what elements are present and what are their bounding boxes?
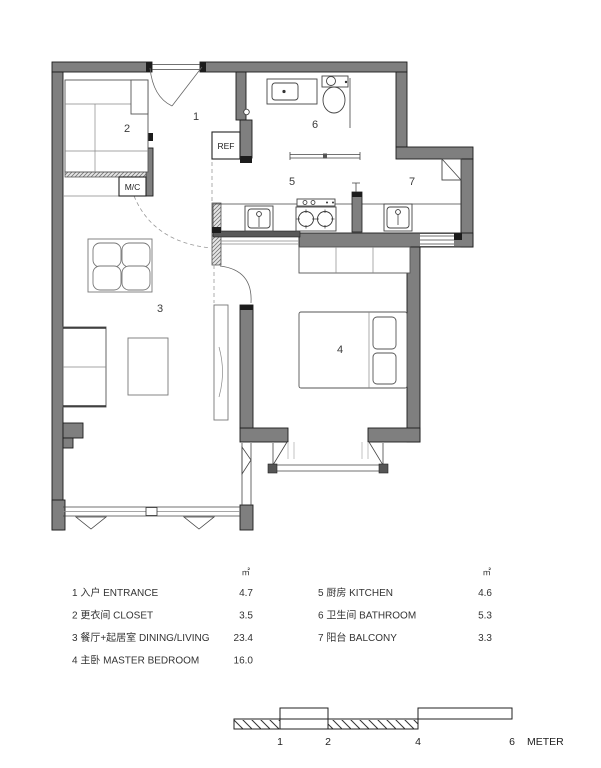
legend-row-area: 16.0 <box>234 656 254 667</box>
door-stop <box>244 109 250 115</box>
room-label-balcony: 7 <box>409 176 415 188</box>
balcony-corner-shelf <box>442 159 461 180</box>
refrigerator-label: REF <box>218 141 235 151</box>
room-label-living: 3 <box>157 303 163 315</box>
washing-machine: M/C <box>119 177 146 196</box>
floor-plan-svg: M/C REF <box>0 0 601 768</box>
chair <box>122 243 150 267</box>
toilet <box>322 76 348 113</box>
room-label-bathroom: 6 <box>312 119 318 131</box>
legend-row-area: 23.4 <box>234 633 254 644</box>
chair <box>93 243 121 267</box>
room-label-bedroom: 4 <box>337 344 343 356</box>
pillow <box>373 353 396 384</box>
counter-half-wall <box>213 231 300 237</box>
legend-row-area: 4.6 <box>478 588 492 599</box>
washbasin <box>267 79 317 104</box>
room-label-closet: 2 <box>124 123 130 135</box>
refrigerator: REF <box>212 132 240 159</box>
scale-tick-4: 4 <box>415 736 421 748</box>
bed <box>299 312 407 388</box>
bedroom-door <box>214 265 251 303</box>
scale-tick-1: 1 <box>277 736 283 748</box>
towel-rail <box>290 152 360 160</box>
room-label-kitchen: 5 <box>289 176 295 188</box>
legend-left-column: 1 入户 ENTRANCE 4.7 2 更衣间 CLOSET 3.5 3 餐厅+… <box>72 586 253 667</box>
scale-tick-2: 2 <box>325 736 331 748</box>
balcony-sink <box>384 204 412 231</box>
floorplan-page: M/C REF <box>0 0 601 768</box>
legend-row-label: 7 阳台 BALCONY <box>318 631 397 644</box>
bedroom-wardrobe <box>299 247 410 273</box>
legend-row-area: 5.3 <box>478 611 492 622</box>
entrance-door <box>150 67 202 106</box>
legend-row-area: 3.5 <box>239 611 253 622</box>
sofa-cabinet <box>63 327 106 407</box>
chair <box>122 266 150 290</box>
coffee-table <box>128 338 168 395</box>
dining-table-set <box>88 239 152 292</box>
unit-header-right: ㎡ <box>482 567 491 577</box>
pillow <box>373 317 396 349</box>
tall-cabinet <box>214 305 228 420</box>
legend-row-label: 5 厨房 KITCHEN <box>318 586 393 599</box>
legend-row-label: 2 更衣间 CLOSET <box>72 609 153 622</box>
counter-divider <box>352 183 362 232</box>
legend-row-label: 4 主卧 MASTER BEDROOM <box>72 654 199 667</box>
legend-row-area: 4.7 <box>239 588 253 599</box>
bedroom-furniture <box>299 247 410 388</box>
washing-machine-label: M/C <box>125 182 141 192</box>
legend-row-label: 3 餐厅+起居室 DINING/LIVING <box>72 631 210 644</box>
legend: ㎡ ㎡ 1 入户 ENTRANCE 4.7 2 更衣间 CLOSET 3.5 3… <box>72 567 492 667</box>
legend-row-label: 6 卫生间 BATHROOM <box>318 609 416 622</box>
chair <box>93 266 121 290</box>
scale-tick-6: 6 <box>509 736 515 748</box>
living-furniture <box>63 239 228 420</box>
bathroom-fixtures <box>244 76 360 160</box>
legend-row-label: 1 入户 ENTRANCE <box>72 586 158 599</box>
stove <box>296 199 336 231</box>
scale-bar: 1 2 4 6 METER <box>234 708 564 748</box>
legend-right-column: 5 厨房 KITCHEN 4.6 6 卫生间 BATHROOM 5.3 7 阳台… <box>318 586 492 644</box>
unit-header-left: ㎡ <box>241 567 250 577</box>
kitchen-sink <box>245 206 273 231</box>
legend-row-area: 3.3 <box>478 633 492 644</box>
room-label-entrance: 1 <box>193 111 199 123</box>
scale-unit-label: METER <box>527 736 564 748</box>
